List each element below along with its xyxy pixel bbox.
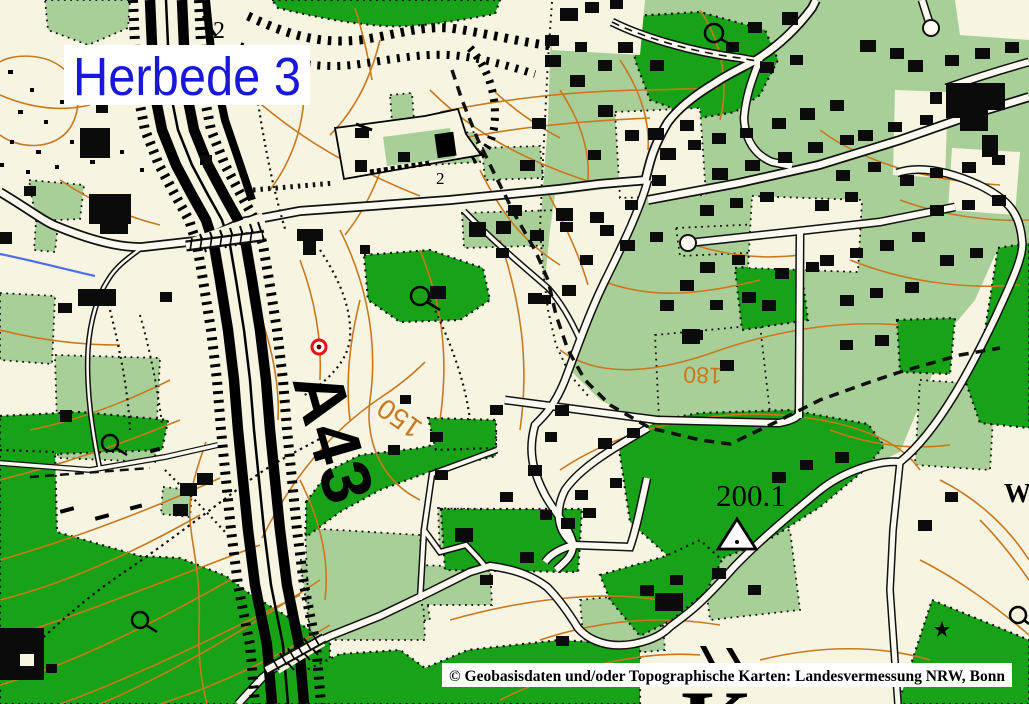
svg-text:W: W — [1004, 478, 1029, 508]
svg-text:2: 2 — [436, 169, 445, 188]
svg-text:Herbede 3: Herbede 3 — [73, 47, 301, 107]
svg-text:© Geobasisdaten und/oder Topog: © Geobasisdaten und/oder Topographische … — [449, 668, 1005, 685]
svg-text:180: 180 — [683, 362, 722, 389]
svg-text:2: 2 — [213, 18, 225, 44]
svg-text:200.1: 200.1 — [716, 478, 786, 513]
